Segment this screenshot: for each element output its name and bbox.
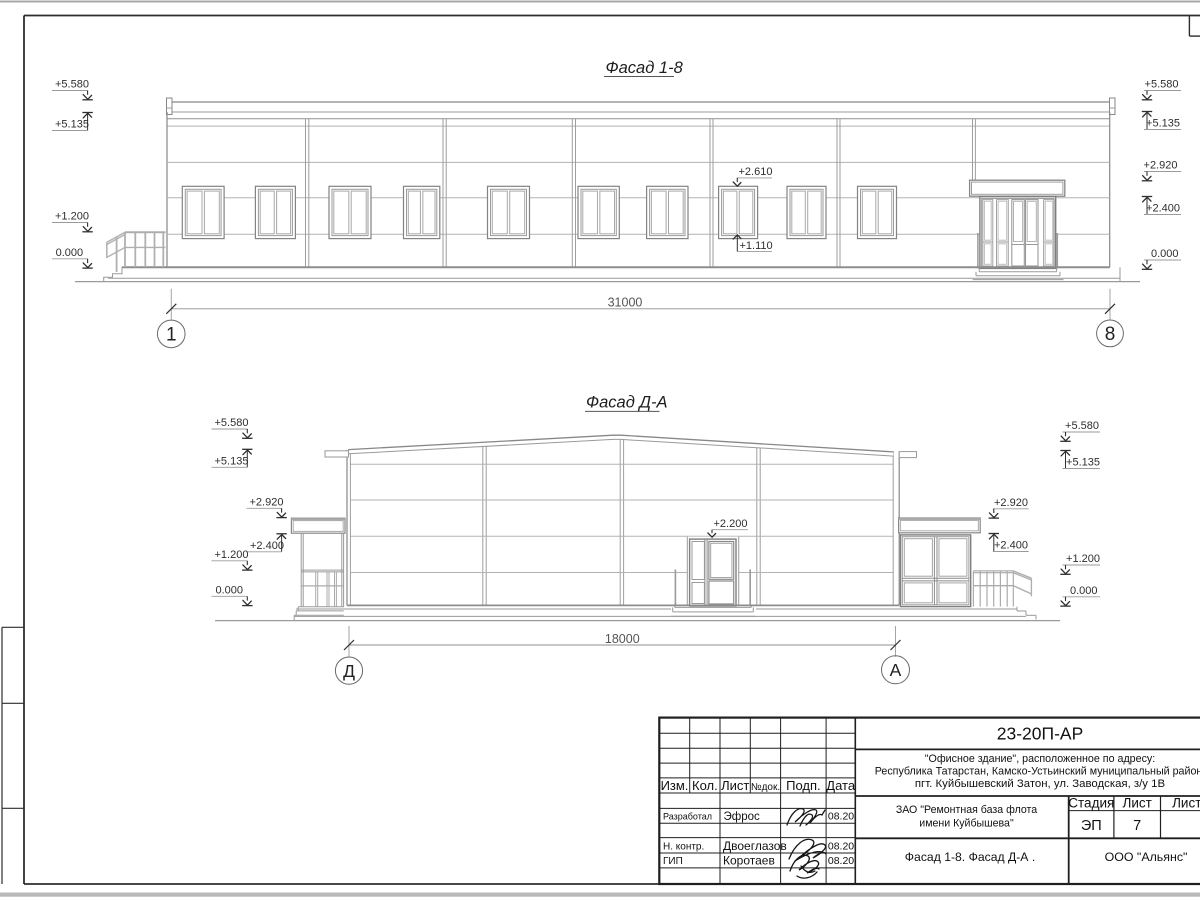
svg-text:08.20: 08.20 [828, 811, 854, 823]
svg-text:+1.200: +1.200 [55, 211, 89, 223]
svg-text:Коротаев: Коротаев [723, 854, 775, 868]
svg-text:ЭП: ЭП [1081, 818, 1102, 834]
svg-text:+5.135: +5.135 [1146, 118, 1180, 130]
svg-text:Разработал: Разработал [663, 812, 712, 822]
svg-text:Подп.: Подп. [786, 778, 821, 793]
svg-text:ООО "Альянс": ООО "Альянс" [1105, 850, 1188, 864]
svg-text:Стадия: Стадия [1068, 796, 1114, 811]
svg-text:+2.920: +2.920 [994, 497, 1028, 509]
svg-text:+2.610: +2.610 [739, 166, 773, 178]
svg-text:+1.110: +1.110 [740, 240, 773, 252]
svg-text:Двоеглазов: Двоеглазов [723, 839, 787, 853]
svg-text:Республика Татарстан, Камско-У: Республика Татарстан, Камско-Устьинский … [875, 766, 1200, 778]
svg-text:08.20: 08.20 [828, 841, 854, 853]
svg-text:+5.135: +5.135 [1066, 457, 1100, 469]
svg-text:+5.135: +5.135 [55, 119, 89, 131]
svg-text:№док.: №док. [751, 782, 780, 793]
svg-text:+5.135: +5.135 [215, 456, 249, 468]
svg-text:+2.200: +2.200 [714, 518, 748, 530]
svg-text:пгт. Куйбышевский Затон, ул. З: пгт. Куйбышевский Затон, ул. Заводская, … [915, 778, 1165, 790]
svg-text:Н. контр.: Н. контр. [663, 842, 704, 853]
svg-text:+1.200: +1.200 [215, 549, 249, 561]
svg-text:А: А [890, 660, 902, 680]
svg-text:имени Куйбышева": имени Куйбышева" [919, 817, 1014, 829]
svg-text:Лист: Лист [1123, 796, 1152, 811]
svg-text:ЗАО "Ремонтная база флота: ЗАО "Ремонтная база флота [896, 804, 1037, 816]
svg-text:7: 7 [1133, 818, 1141, 834]
svg-text:0.000: 0.000 [1070, 585, 1098, 597]
svg-text:+5.580: +5.580 [215, 417, 249, 429]
svg-text:"Офисное здание", расположенно: "Офисное здание", расположенное по адрес… [925, 753, 1155, 765]
svg-text:Дата: Дата [826, 778, 856, 793]
svg-text:0.000: 0.000 [56, 247, 84, 259]
svg-text:ГИП: ГИП [663, 856, 683, 867]
svg-text:0.000: 0.000 [216, 585, 244, 597]
svg-text:Эфрос: Эфрос [724, 811, 761, 823]
svg-text:23-20П-АР: 23-20П-АР [997, 724, 1084, 744]
svg-text:Д: Д [343, 661, 355, 681]
svg-text:18000: 18000 [605, 632, 640, 646]
svg-text:+2.400: +2.400 [250, 540, 284, 552]
svg-text:+2.920: +2.920 [250, 497, 284, 509]
svg-text:+1.200: +1.200 [1066, 553, 1100, 565]
svg-text:1: 1 [166, 325, 177, 346]
svg-text:Фасад 1-8: Фасад 1-8 [606, 59, 684, 77]
svg-text:+2.400: +2.400 [994, 540, 1028, 552]
svg-text:08.20: 08.20 [828, 855, 854, 867]
svg-text:+5.580: +5.580 [1145, 79, 1179, 91]
svg-text:31000: 31000 [608, 295, 643, 309]
svg-text:Кол.: Кол. [692, 778, 718, 793]
svg-text:Изм.: Изм. [661, 778, 689, 793]
svg-text:Листов: Листов [1172, 796, 1200, 811]
svg-text:+5.580: +5.580 [1065, 420, 1099, 432]
svg-text:Фасад 1-8. Фасад Д-А .: Фасад 1-8. Фасад Д-А . [905, 850, 1035, 864]
svg-text:8: 8 [1105, 324, 1116, 345]
svg-text:+5.580: +5.580 [55, 79, 89, 91]
svg-text:+2.920: +2.920 [1144, 160, 1178, 172]
svg-text:0.000: 0.000 [1151, 248, 1179, 260]
svg-text:+2.400: +2.400 [1146, 203, 1180, 215]
svg-text:Фасад Д-А: Фасад Д-А [586, 394, 668, 412]
svg-text:Лист: Лист [721, 778, 749, 793]
